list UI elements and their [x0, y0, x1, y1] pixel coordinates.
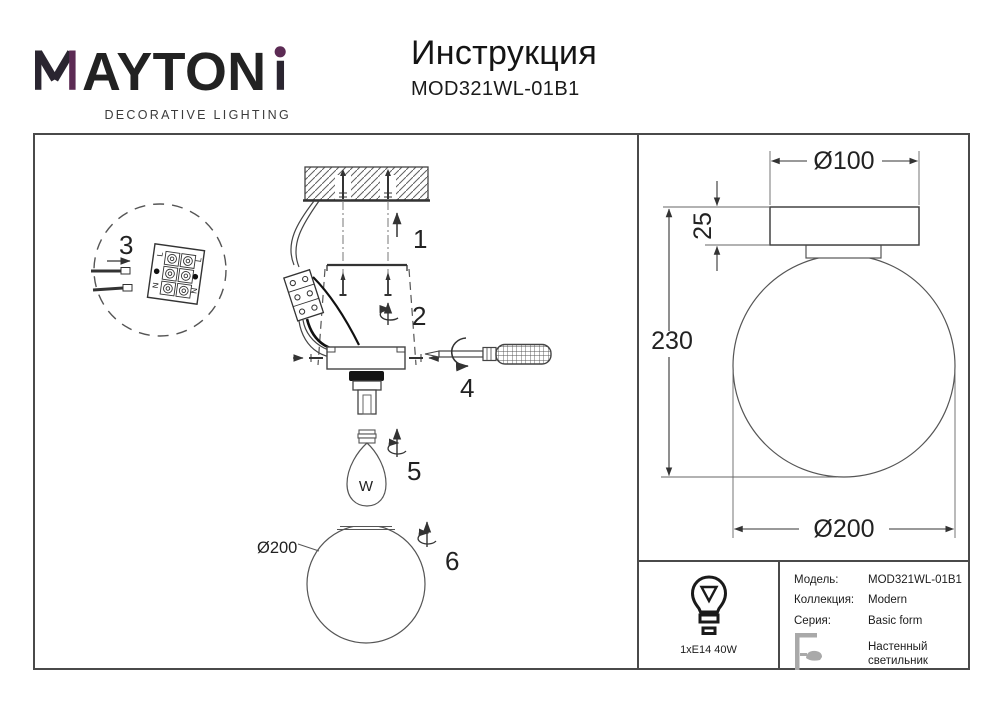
stripped-wires	[91, 268, 132, 292]
svg-text:Ø100: Ø100	[813, 147, 874, 175]
logo-purple-dot	[275, 46, 286, 57]
step-4-label: 4	[460, 373, 474, 403]
canopy-drawing	[293, 347, 439, 414]
dimensions-panel: Ø100 25 230	[639, 135, 970, 668]
logo-purple-stem	[69, 50, 75, 89]
terminal-detail-circle: 3	[91, 204, 226, 336]
neck-outline	[806, 245, 881, 258]
model-number: MOD321WL-01B1	[411, 78, 597, 101]
logo-letters-ayton: AYTON	[82, 42, 267, 102]
spec-value: MOD321WL-01B1	[866, 573, 966, 587]
step-3-label: 3	[119, 230, 133, 260]
main-frame: 1	[33, 133, 970, 670]
step-2-label: 2	[412, 301, 426, 331]
screwdriver-icon	[425, 338, 551, 366]
spec-label: Модель:	[794, 573, 866, 587]
brand-wordmark: AYTON	[35, 40, 293, 102]
spec-table: Модель: MOD321WL-01B1 Коллекция: Modern …	[780, 562, 970, 668]
instruction-sheet: AYTON DECORATIVE LIGHTING Инструкция MOD…	[0, 0, 1000, 707]
dimension-drawing: Ø100 25 230	[639, 135, 970, 560]
terminal-block-detail: L N L N	[147, 244, 204, 304]
centerlines	[343, 201, 388, 295]
spec-value: Basic form	[866, 614, 966, 628]
lamp-spec-text: 1xE14 40W	[680, 644, 737, 656]
dim-canopy-height: 25	[663, 181, 770, 271]
logo-tagline: DECORATIVE LIGHTING	[35, 108, 291, 122]
svg-text:25: 25	[689, 212, 717, 240]
installation-panel: 1	[35, 135, 639, 668]
spec-row-type: Настенный светильник	[794, 632, 966, 676]
bulb-drawing: W	[347, 429, 406, 506]
logo-letter-m	[35, 50, 76, 89]
spec-value: Настенный светильник	[866, 640, 966, 669]
globe-diameter-callout: Ø200	[257, 539, 297, 557]
dim-canopy-diameter: Ø100	[770, 147, 919, 205]
logo-letter-i	[275, 46, 286, 90]
spec-value: Modern	[866, 593, 966, 607]
svg-text:Ø200: Ø200	[813, 515, 874, 543]
title-block: Инструкция MOD321WL-01B1	[411, 34, 597, 101]
bulb-wattage-mark: W	[359, 478, 374, 495]
spec-row-series: Серия: Basic form	[794, 614, 966, 628]
step-5-label: 5	[407, 456, 421, 486]
canopy-outline	[770, 207, 919, 245]
page-title: Инструкция	[411, 34, 597, 73]
wall-lamp-icon	[794, 632, 824, 672]
spec-box: 1xE14 40W Модель: MOD321WL-01B1 Коллекци…	[639, 560, 970, 668]
spec-label: Коллекция:	[794, 593, 866, 607]
lamp-spec-cell: 1xE14 40W	[639, 562, 780, 668]
globe-drawing: Ø200	[257, 520, 436, 643]
ceiling-drawing	[303, 167, 430, 201]
wiring-drawing	[284, 201, 361, 358]
installation-drawing: 1	[35, 135, 637, 668]
spec-row-model: Модель: MOD321WL-01B1	[794, 573, 966, 587]
step-6-label: 6	[445, 546, 459, 576]
svg-text:230: 230	[651, 327, 693, 355]
spec-label: Серия:	[794, 614, 866, 628]
socket-ring	[349, 371, 384, 381]
globe-outline	[733, 255, 955, 477]
spec-row-collection: Коллекция: Modern	[794, 593, 966, 607]
brand-logo: AYTON DECORATIVE LIGHTING	[35, 40, 295, 122]
bulb-icon	[688, 574, 730, 638]
step-1-label: 1	[413, 224, 427, 254]
wall-lamp-icon-wrap	[794, 632, 866, 676]
